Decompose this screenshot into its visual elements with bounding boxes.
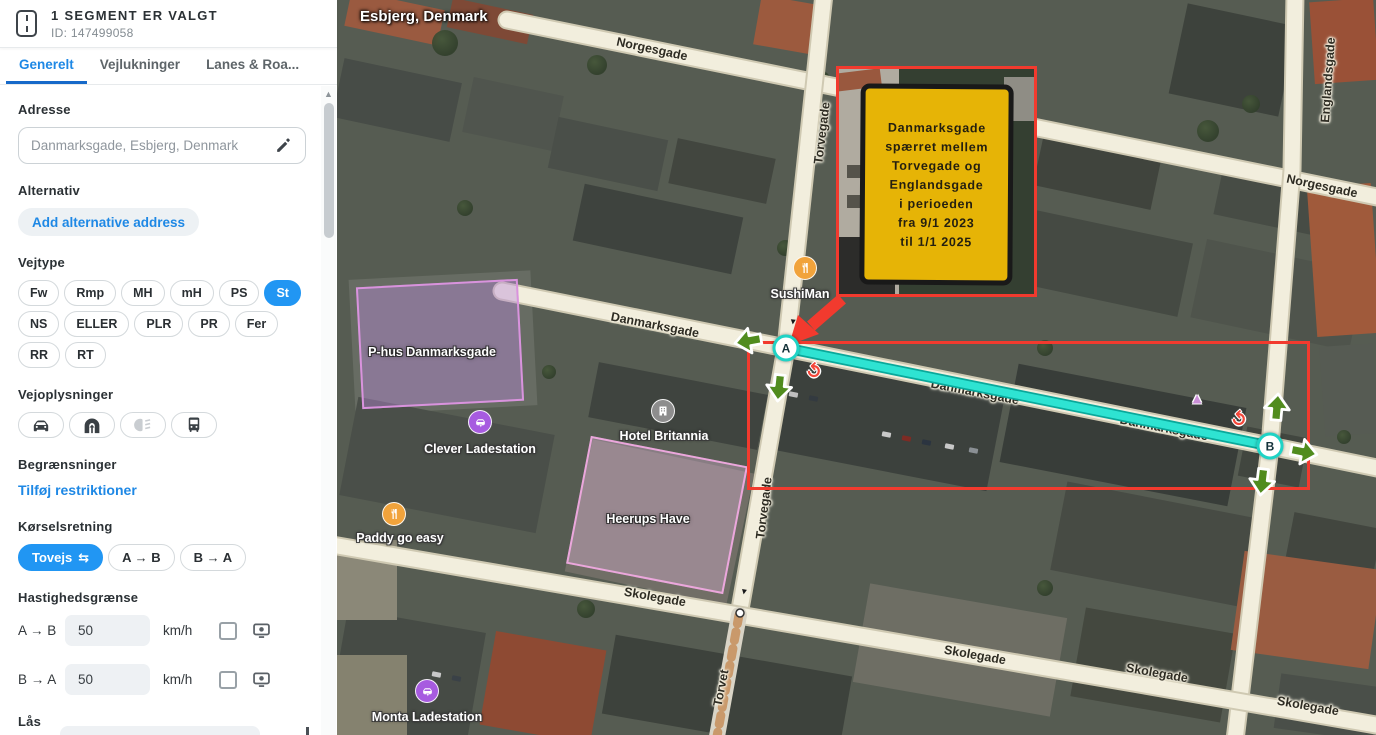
map-building: [480, 631, 607, 735]
poi-label-hotel-britannia: Hotel Britannia: [620, 429, 709, 443]
map-location-label: Esbjerg, Denmark: [360, 8, 488, 25]
map-building: [548, 117, 668, 191]
speed-camera-icon[interactable]: [251, 669, 272, 690]
map-tree: [587, 55, 607, 75]
address-label: Adresse: [18, 102, 306, 117]
closure-sign-line: spærret mellem: [865, 139, 1008, 154]
map-tree: [1242, 95, 1260, 113]
segment-panel-header: 1 SEGMENT ER VALGT ID: 147499058: [0, 0, 337, 48]
speed-limit-section: Hastighedsgrænse A → Bkm/hB → Akm/h: [18, 590, 306, 695]
panel-tabs: GenereltVejlukningerLanes & Roa...: [0, 48, 337, 85]
poi-label-paddy-go-easy: Paddy go easy: [356, 531, 444, 545]
street-label-norgesgade: Norgesgade: [615, 35, 689, 64]
map-tree: [432, 30, 458, 56]
speed-unit-label: km/h: [163, 672, 205, 687]
map-building: [337, 540, 397, 620]
speed-direction-label: B → A: [18, 672, 65, 687]
poi-label-monta-ladestation: Monta Ladestation: [372, 710, 482, 724]
speed-limit-rows: A → Bkm/hB → Akm/h: [18, 615, 306, 695]
segment-panel: 1 SEGMENT ER VALGT ID: 147499058 Generel…: [0, 0, 337, 735]
street-label-torvegade: Torvegade: [811, 101, 832, 165]
road-type-pill-pr[interactable]: PR: [188, 311, 229, 337]
direction-label: Kørselsretning: [18, 519, 306, 534]
poi-clever-ladestation: [468, 410, 492, 434]
tab-vejlukninger[interactable]: Vejlukninger: [87, 48, 193, 84]
closure-sign-line: fra 9/1 2023: [865, 215, 1008, 230]
segment-endpoint-b[interactable]: B: [1257, 433, 1284, 460]
map-tree: [1197, 120, 1219, 142]
map-editor-app: 1 SEGMENT ER VALGT ID: 147499058 Generel…: [0, 0, 1376, 735]
address-section: Adresse: [18, 102, 306, 164]
height-stepper[interactable]: [306, 727, 309, 735]
panel-title: 1 SEGMENT ER VALGT: [51, 8, 218, 23]
one-way-arrow-icon: ▾: [790, 316, 796, 327]
hotel-icon: [657, 405, 669, 417]
edit-pencil-icon[interactable]: [274, 136, 293, 155]
address-box: [18, 127, 306, 164]
direction-options: Tovejs⇆A → BB → A: [18, 544, 306, 571]
road-info-options: [18, 412, 306, 438]
map-building: [1169, 3, 1298, 116]
ev-charger-icon: [421, 685, 434, 698]
map-building: [339, 397, 554, 533]
alternative-section: Alternativ Add alternative address: [18, 183, 306, 236]
poi-label-sushiman: SushiMan: [770, 287, 829, 301]
closure-sign-line: Englandsgade: [865, 177, 1008, 192]
road-type-pill-ps[interactable]: PS: [219, 280, 260, 306]
map-tree: [1037, 580, 1053, 596]
closure-sign-line: Torvegade og: [865, 158, 1008, 173]
height-input[interactable]: [60, 726, 260, 735]
add-alternative-address-button[interactable]: Add alternative address: [18, 208, 199, 236]
restaurant-icon: [799, 262, 811, 274]
speed-limit-label: Hastighedsgrænse: [18, 590, 306, 605]
road-type-pill-mh[interactable]: mH: [170, 280, 214, 306]
map-tree: [807, 70, 831, 94]
map-building: [1050, 482, 1265, 609]
road-type-options: FwRmpMHmHPSStNSELLERPLRPRFerRRRT: [18, 280, 306, 368]
speed-row-b-a: B → Akm/h: [18, 664, 306, 695]
poi-hotel-britannia: [651, 399, 675, 423]
headlight-icon[interactable]: [120, 412, 166, 438]
map-tree: [457, 200, 473, 216]
speed-direction-label: A → B: [18, 623, 65, 638]
tab-generelt[interactable]: Generelt: [6, 48, 87, 84]
restrictions-section: Begrænsninger Tilføj restriktioner: [18, 457, 306, 500]
speed-input-a-b[interactable]: [65, 615, 150, 646]
road-type-pill-eller[interactable]: ELLER: [64, 311, 129, 337]
street-label-danmarksgade: Danmarksgade: [610, 310, 701, 341]
map-marker-triangle: ▲: [1190, 391, 1205, 408]
road-type-pill-st[interactable]: St: [264, 280, 301, 306]
sidebar-scrollbar[interactable]: ▲: [321, 86, 336, 735]
map-tree: [542, 365, 556, 379]
add-restrictions-link[interactable]: Tilføj restriktioner: [18, 482, 137, 498]
map-building: [1033, 136, 1161, 210]
map-building: [1231, 551, 1376, 669]
poi-monta-ladestation: [415, 679, 439, 703]
red-pointer-arrow: [811, 299, 842, 326]
road-type-pill-fw[interactable]: Fw: [18, 280, 59, 306]
two-way-arrows-icon: ⇆: [78, 550, 89, 566]
road-info-section: Vejoplysninger: [18, 387, 306, 438]
segment-id: ID: 147499058: [51, 26, 218, 40]
direction-pill-a-b[interactable]: A → B: [108, 544, 175, 571]
alternative-label: Alternativ: [18, 183, 306, 198]
closure-sign-line: Danmarksgade: [865, 120, 1008, 135]
road-torvegade[interactable]: [739, 0, 824, 615]
closure-sign-line: til 1/1 2025: [865, 234, 1008, 249]
map-building: [1309, 0, 1376, 84]
map-building: [1011, 208, 1193, 317]
road-type-pill-rr[interactable]: RR: [18, 342, 60, 368]
road-type-section: Vejtype FwRmpMHmHPSStNSELLERPLRPRFerRRRT: [18, 255, 306, 368]
car-icon[interactable]: [18, 412, 64, 438]
speed-unit-label: km/h: [163, 623, 205, 638]
poi-paddy-go-easy: [382, 502, 406, 526]
segment-endpoint-a[interactable]: A: [773, 335, 800, 362]
closure-sign-photo: Danmarksgadespærret mellemTorvegade ogEn…: [836, 66, 1037, 297]
map-building: [668, 138, 775, 204]
closure-sign: Danmarksgadespærret mellemTorvegade ogEn…: [859, 83, 1013, 285]
map-canvas[interactable]: P-hus Danmarksgade Heerups Have Norgesga…: [337, 0, 1376, 735]
road-type-pill-rmp[interactable]: Rmp: [64, 280, 116, 306]
area-phus-danmarksgade: [356, 279, 524, 409]
segment-highlight-rect: [747, 341, 1310, 490]
road-info-label: Vejoplysninger: [18, 387, 306, 402]
road-type-label: Vejtype: [18, 255, 306, 270]
map-building: [337, 58, 462, 142]
speed-checkbox-b-a[interactable]: [219, 671, 237, 689]
map-building: [753, 0, 823, 55]
one-way-arrow-icon: ▾: [741, 586, 748, 598]
ev-charger-icon: [474, 416, 487, 429]
road-type-pill-plr[interactable]: PLR: [134, 311, 183, 337]
speed-checkbox-a-b[interactable]: [219, 622, 237, 640]
map-tree: [777, 240, 793, 256]
map-building: [1307, 183, 1376, 337]
panel-content: Adresse Alternativ Add alternative addre…: [0, 86, 320, 735]
road-segment-icon: [16, 10, 37, 37]
direction-pill-tovejs[interactable]: Tovejs⇆: [18, 544, 103, 571]
bus-icon[interactable]: [171, 412, 217, 438]
road-type-pill-fer[interactable]: Fer: [235, 311, 278, 337]
area-label: P-hus Danmarksgade: [368, 345, 496, 359]
speed-camera-icon[interactable]: [251, 620, 272, 641]
road-type-pill-mh[interactable]: MH: [121, 280, 164, 306]
poi-label-clever-ladestation: Clever Ladestation: [424, 442, 536, 456]
closure-sign-line: i perioeden: [865, 196, 1008, 211]
speed-row-a-b: A → Bkm/h: [18, 615, 306, 646]
direction-section: Kørselsretning Tovejs⇆A → BB → A: [18, 519, 306, 571]
restaurant-icon: [388, 508, 400, 520]
road-type-pill-ns[interactable]: NS: [18, 311, 59, 337]
tab-lanes-roa[interactable]: Lanes & Roa...: [193, 48, 312, 84]
address-input[interactable]: [31, 138, 266, 153]
restrictions-label: Begrænsninger: [18, 457, 306, 472]
map-tree: [577, 600, 595, 618]
map-building: [573, 184, 744, 274]
scrollbar-thumb[interactable]: [324, 103, 334, 238]
intersection-node: [736, 609, 744, 617]
direction-pill-b-a[interactable]: B → A: [180, 544, 247, 571]
map-tree: [1337, 430, 1351, 444]
area-label: Heerups Have: [606, 512, 689, 526]
speed-input-b-a[interactable]: [65, 664, 150, 695]
map-building: [462, 77, 564, 151]
tunnel-icon[interactable]: [69, 412, 115, 438]
map-building: [1319, 343, 1376, 437]
scroll-up-icon[interactable]: ▲: [321, 89, 336, 99]
poi-sushiman: [793, 256, 817, 280]
road-type-pill-rt[interactable]: RT: [65, 342, 106, 368]
